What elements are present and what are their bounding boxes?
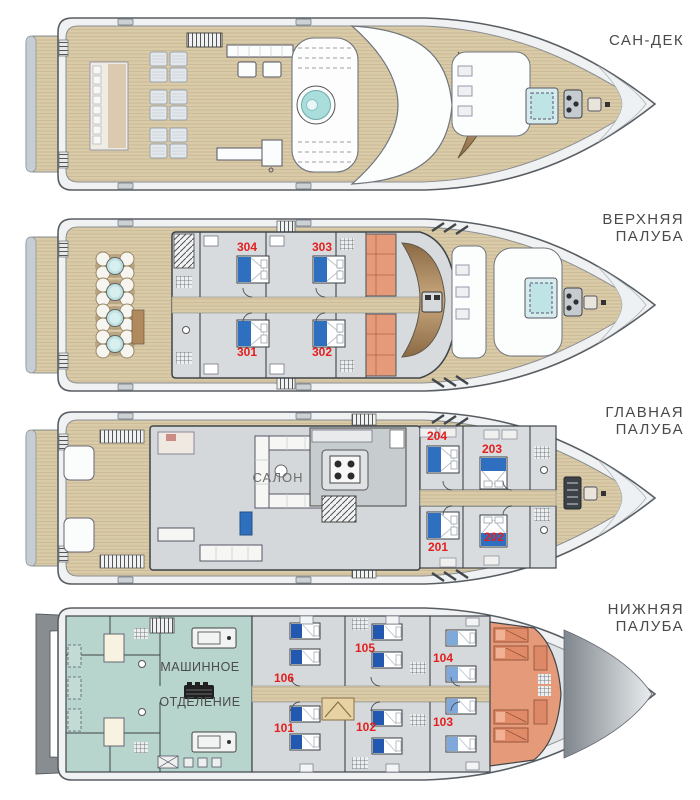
cabin-103-bed [446, 698, 476, 714]
cabin-number-201: 201 [420, 541, 456, 553]
cabin-number-203: 203 [474, 443, 510, 455]
windlass-icon [564, 288, 582, 316]
cabin-101-bed [290, 706, 320, 722]
cabin-104-bed [446, 630, 476, 646]
cabin-106-bed [290, 649, 320, 665]
engine-room-label-line1: МАШИННОЕ [146, 660, 254, 674]
cabin-201-bed [427, 512, 459, 539]
bow-hull [564, 630, 652, 758]
cabin-number-304: 304 [229, 241, 265, 253]
cabin-number-202: 202 [476, 531, 512, 543]
cabin-number-105: 105 [347, 642, 383, 654]
stairs-icon [174, 234, 194, 268]
salon-label: САЛОН [238, 470, 318, 485]
stairs-icon [322, 496, 356, 522]
stove-icon [330, 456, 360, 483]
crew-bunk [494, 628, 528, 642]
stairs-icon [187, 33, 222, 47]
cabin-301-bed [237, 320, 269, 347]
stairs-icon [150, 618, 174, 633]
deck-label-lower-deck: НИЖНЯЯ ПАЛУБА [524, 601, 684, 635]
engine-room-label-line2: ОТДЕЛЕНИЕ [146, 695, 254, 709]
deck-label-sun-deck: САН-ДЕК [524, 32, 684, 49]
cabin-number-303: 303 [304, 241, 340, 253]
cabin-106-bed [290, 623, 320, 639]
crew-bunk [494, 710, 528, 724]
deck-label-upper-deck: ВЕРХНЯЯ ПАЛУБА [524, 211, 684, 245]
engine-room [66, 616, 252, 772]
windlass-icon [564, 90, 582, 118]
guest-cabins [252, 616, 490, 772]
corridor [420, 490, 556, 506]
dining-table-icon [95, 278, 135, 306]
deck-label-main-deck: ГЛАВНАЯ ПАЛУБА [524, 404, 684, 438]
salon-stairs [240, 512, 252, 535]
cabin-105-bed [372, 652, 402, 668]
cabin-101-bed [290, 734, 320, 750]
dining-table-icon [95, 304, 135, 332]
crew-bunk [494, 646, 528, 660]
cabin-303-bed [313, 256, 345, 283]
cabin-204-bed [427, 446, 459, 473]
crew-bed [104, 634, 124, 662]
crew-bunk [494, 728, 528, 742]
yacht-deck-plans: САН-ДЕК ВЕРХНЯЯ ПАЛУБА ГЛАВНАЯ ПАЛУБА НИ… [0, 0, 700, 800]
cabin-number-301: 301 [229, 346, 265, 358]
cabin-104-bed [446, 666, 476, 682]
cabin-number-104: 104 [425, 652, 461, 664]
cabin-102-bed [372, 738, 402, 754]
corridor [172, 297, 422, 313]
cabin-105-bed [372, 624, 402, 640]
jacuzzi-pod [292, 38, 358, 172]
cabin-number-101: 101 [266, 722, 302, 734]
deck-plan-drawing [0, 0, 700, 800]
cabin-number-204: 204 [419, 430, 455, 442]
dining-table-icon [95, 330, 135, 358]
cabin-203-bed [480, 457, 507, 489]
cabin-number-103: 103 [425, 716, 461, 728]
bar-counter [217, 148, 267, 160]
cabin-number-102: 102 [348, 721, 384, 733]
cabin-304-bed [237, 256, 269, 283]
cabin-number-106: 106 [266, 672, 302, 684]
crew-bed [104, 718, 124, 746]
cabin-103-bed [446, 736, 476, 752]
dining-table-icon [95, 252, 135, 280]
cabin-number-302: 302 [304, 346, 340, 358]
cabin-302-bed [313, 320, 345, 347]
